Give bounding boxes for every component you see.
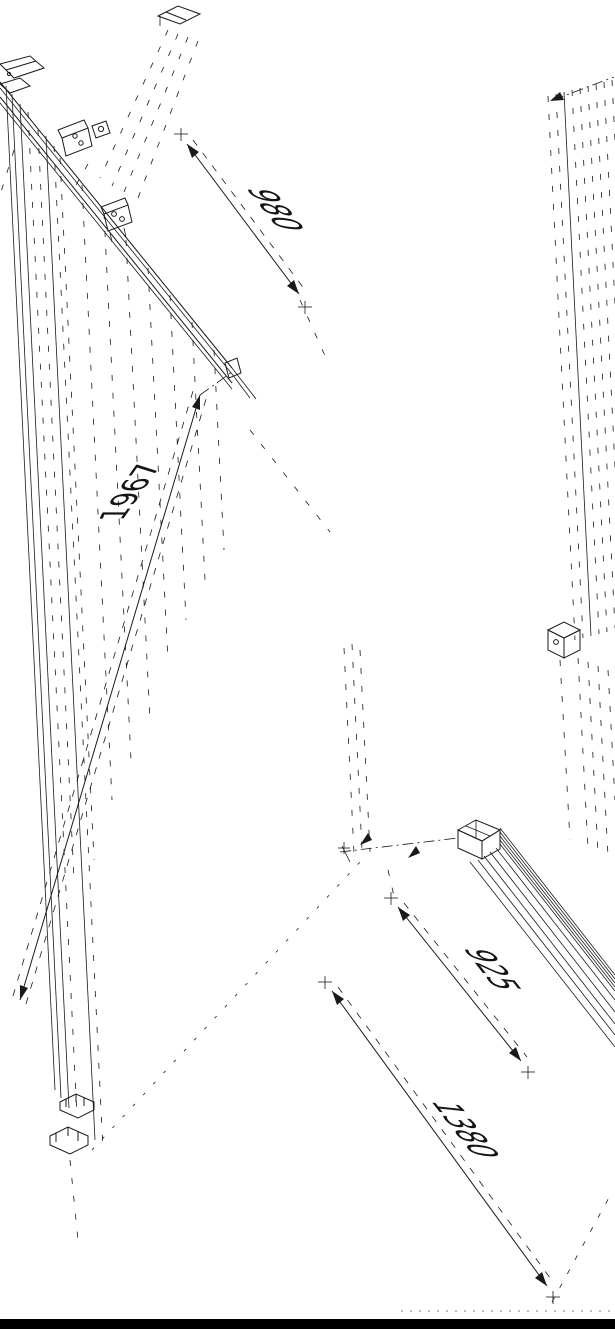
rail-clamp (58, 120, 110, 192)
dimension-overall-width: 1380 (318, 976, 612, 1304)
lower-panel-rail (470, 828, 615, 1047)
top-fitting (100, 6, 200, 198)
dimension-top-rail: 980 (174, 128, 314, 314)
footer-dotted-row (401, 1310, 610, 1312)
right-panel-clamp (548, 622, 580, 840)
left-panel-hidden-lines (38, 130, 330, 880)
dimension-label-925: 925 (453, 946, 530, 993)
dimension-lower-panel: 925 (384, 870, 535, 1079)
wall-bracket (0, 56, 44, 195)
floor-brackets (50, 862, 360, 1240)
bottom-bar (0, 1319, 615, 1329)
dimension-label-1380: 1380 (421, 1099, 509, 1160)
top-rail (0, 82, 256, 399)
right-panel (548, 77, 615, 640)
rail-connector (101, 198, 132, 242)
dimension-label-1967: 1967 (91, 463, 171, 521)
lower-panel-assembly (338, 644, 615, 862)
technical-drawing-page: 980 1967 (0, 0, 615, 1329)
isometric-drawing: 980 1967 (0, 0, 615, 1329)
lower-panel-clamp (458, 820, 500, 859)
